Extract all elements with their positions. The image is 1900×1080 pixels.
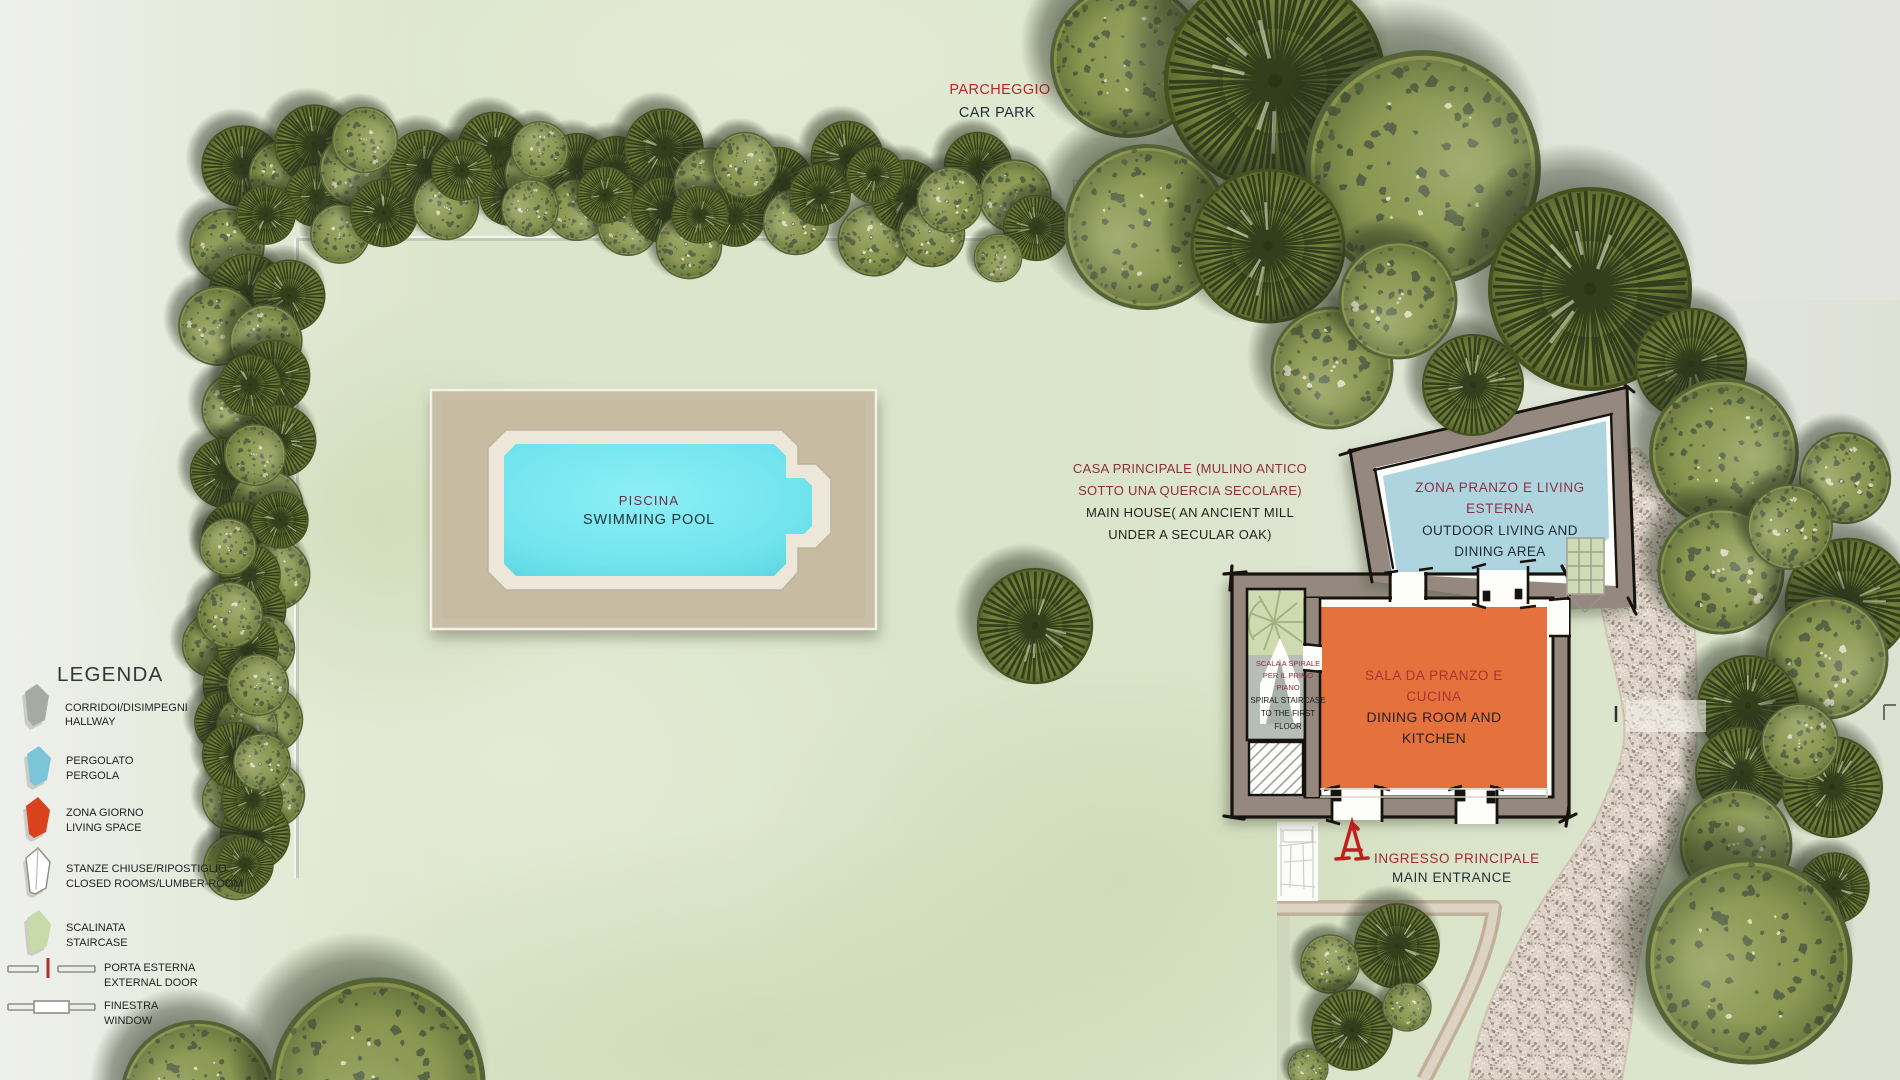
svg-text:PERGOLA: PERGOLA: [66, 770, 120, 782]
svg-text:DINING AREA: DINING AREA: [1454, 544, 1545, 559]
svg-text:MAIN HOUSE( AN ANCIENT MILL: MAIN HOUSE( AN ANCIENT MILL: [1086, 505, 1294, 520]
svg-text:PERGOLATO: PERGOLATO: [66, 755, 134, 767]
svg-text:FLOOR: FLOOR: [1274, 722, 1302, 731]
svg-text:TO THE FIRST: TO THE FIRST: [1261, 709, 1315, 718]
svg-text:STANZE CHIUSE/RIPOSTIGLIO: STANZE CHIUSE/RIPOSTIGLIO: [66, 863, 227, 875]
svg-text:SPIRAL STAIRCASE: SPIRAL STAIRCASE: [1250, 696, 1325, 705]
svg-text:ZONA GIORNO: ZONA GIORNO: [66, 807, 144, 819]
svg-text:INGRESSO PRINCIPALE: INGRESSO PRINCIPALE: [1374, 851, 1540, 866]
svg-text:DINING ROOM AND: DINING ROOM AND: [1366, 709, 1501, 725]
svg-text:EXTERNAL DOOR: EXTERNAL DOOR: [104, 977, 198, 989]
svg-text:OUTDOOR LIVING AND: OUTDOOR LIVING AND: [1422, 523, 1578, 538]
svg-text:MAIN ENTRANCE: MAIN ENTRANCE: [1392, 870, 1512, 885]
svg-text:UNDER A SECULAR OAK): UNDER A SECULAR OAK): [1108, 527, 1272, 542]
svg-text:PIANO: PIANO: [1276, 683, 1300, 692]
svg-text:LIVING SPACE: LIVING SPACE: [66, 822, 142, 834]
svg-text:HALLWAY: HALLWAY: [65, 716, 116, 728]
svg-text:LEGENDA: LEGENDA: [57, 663, 163, 686]
svg-text:PER IL PRIMO: PER IL PRIMO: [1263, 671, 1313, 680]
svg-text:ZONA PRANZO E LIVING: ZONA PRANZO E LIVING: [1415, 480, 1585, 495]
svg-text:STAIRCASE: STAIRCASE: [66, 937, 128, 949]
svg-text:PORTA ESTERNA: PORTA ESTERNA: [104, 962, 196, 974]
svg-text:CASA PRINCIPALE (MULINO ANTICO: CASA PRINCIPALE (MULINO ANTICO: [1073, 461, 1307, 476]
svg-text:CORRIDOI/DISIMPEGNI: CORRIDOI/DISIMPEGNI: [65, 702, 188, 714]
svg-text:ESTERNA: ESTERNA: [1466, 501, 1534, 516]
svg-text:PISCINA: PISCINA: [619, 493, 679, 508]
svg-text:SWIMMING POOL: SWIMMING POOL: [583, 512, 715, 528]
svg-text:CLOSED ROOMS/LUMBER-ROOM: CLOSED ROOMS/LUMBER-ROOM: [66, 878, 243, 890]
svg-text:SCALA A SPIRALE: SCALA A SPIRALE: [1256, 659, 1320, 668]
svg-text:SCALINATA: SCALINATA: [66, 922, 126, 934]
svg-text:SOTTO UNA QUERCIA SECOLARE): SOTTO UNA QUERCIA SECOLARE): [1078, 483, 1302, 498]
svg-text:WINDOW: WINDOW: [104, 1015, 153, 1027]
svg-text:CUCINA: CUCINA: [1406, 689, 1461, 704]
svg-text:FINESTRA: FINESTRA: [104, 1000, 159, 1012]
svg-text:SALA DA PRANZO E: SALA DA PRANZO E: [1365, 668, 1503, 683]
svg-text:KITCHEN: KITCHEN: [1402, 730, 1466, 746]
